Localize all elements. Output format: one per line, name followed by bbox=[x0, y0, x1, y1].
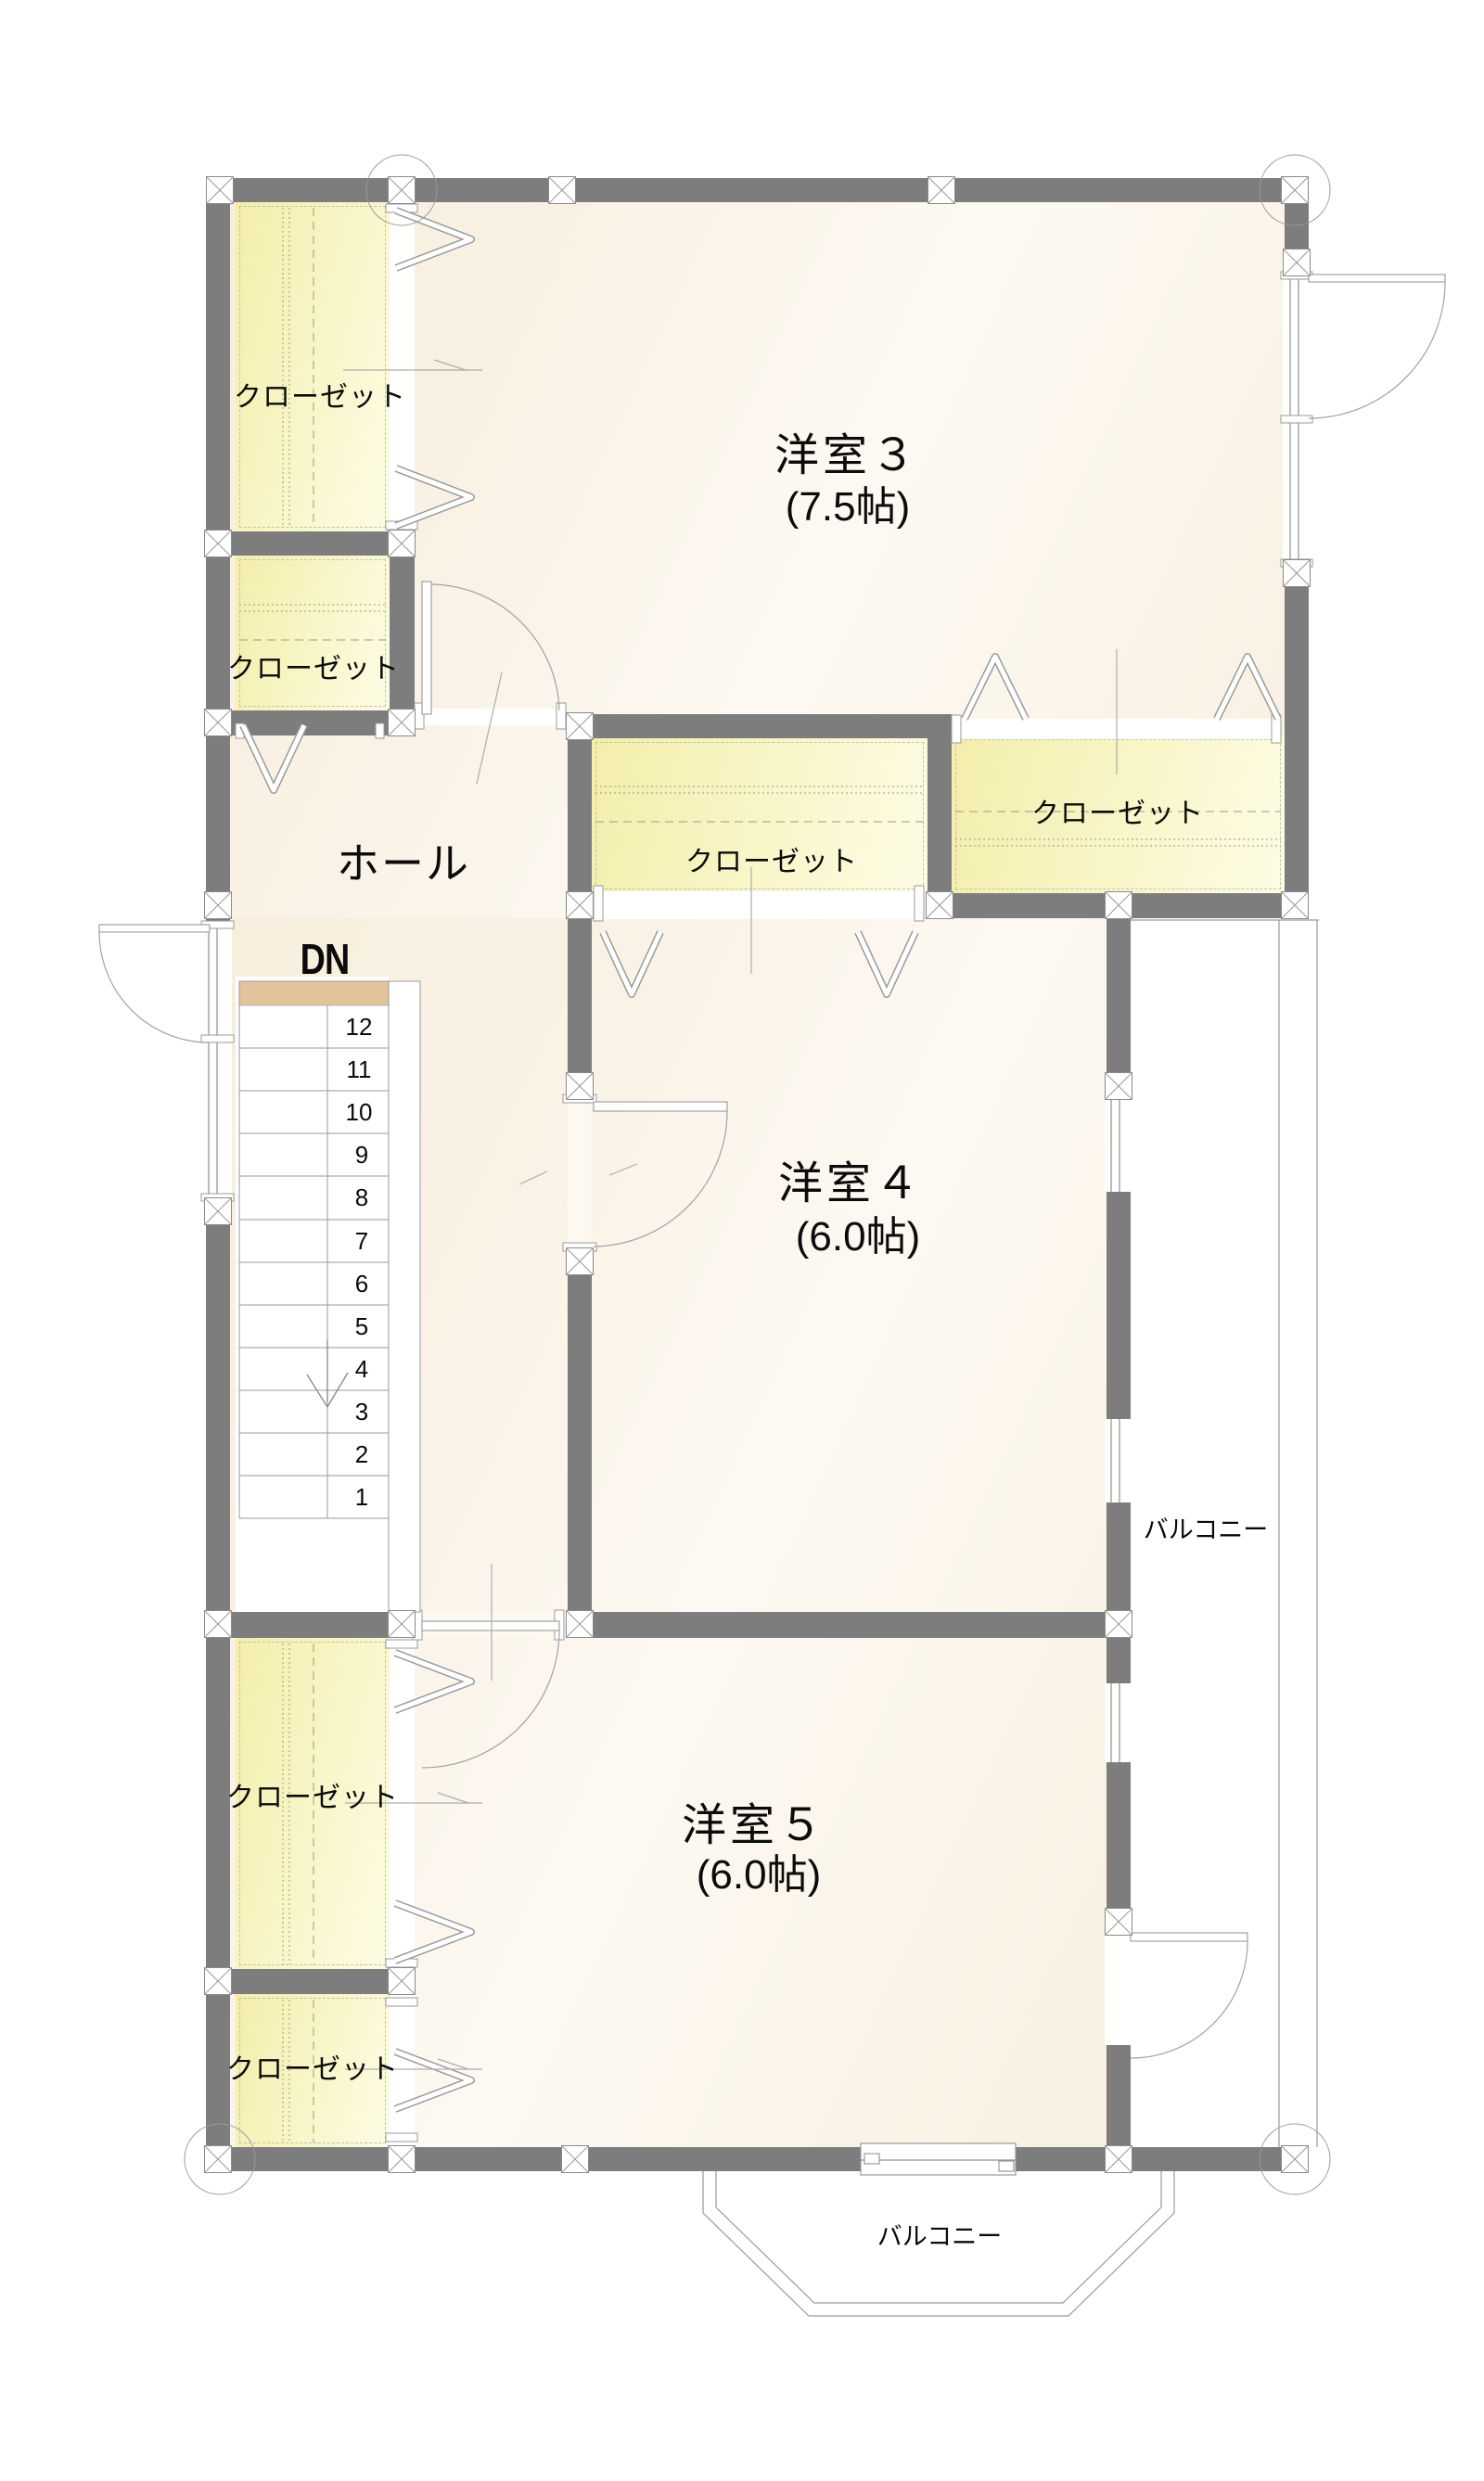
closet-mid-right-label: クローゼット bbox=[1031, 800, 1204, 828]
stairs-dn-label: DN bbox=[301, 938, 350, 980]
room5-name: 洋室５ bbox=[682, 1804, 826, 1848]
stair-step-12: 12 bbox=[346, 1015, 373, 1039]
room4-size: (6.0帖) bbox=[796, 1217, 920, 1258]
stairs-down-arrow bbox=[307, 1340, 348, 1407]
room3-size: (7.5帖) bbox=[786, 487, 910, 528]
stair-step-2: 2 bbox=[355, 1442, 368, 1466]
floorplan-2f: クローゼット クローゼット クローゼット クローゼット クローゼット クローゼッ… bbox=[0, 0, 1484, 2481]
closet-2-label: クローゼット bbox=[227, 656, 400, 684]
balcony-bottom-label: バルコニー bbox=[877, 2225, 1002, 2250]
closet-3-label: クローゼット bbox=[226, 1784, 399, 1812]
hall-label: ホール bbox=[337, 842, 470, 885]
stair-step-5: 5 bbox=[355, 1314, 368, 1338]
stair-step-4: 4 bbox=[355, 1357, 368, 1381]
closet-4-label: クローゼット bbox=[226, 2056, 399, 2084]
room3-name: 洋室３ bbox=[774, 434, 919, 479]
balcony-right-label: バルコニー bbox=[1144, 1518, 1268, 1543]
closet-mid-left-label: クローゼット bbox=[685, 849, 858, 876]
stair-step-1: 1 bbox=[355, 1485, 368, 1509]
stair-step-9: 9 bbox=[355, 1143, 368, 1167]
stairs-drawing bbox=[239, 981, 420, 1612]
stair-step-7: 7 bbox=[355, 1229, 368, 1253]
room5-size: (6.0帖) bbox=[697, 1855, 821, 1896]
stair-step-8: 8 bbox=[355, 1185, 368, 1209]
jamb-tabs bbox=[201, 204, 1312, 2142]
stair-step-10: 10 bbox=[346, 1100, 373, 1124]
stair-step-6: 6 bbox=[355, 1272, 368, 1296]
room4-name: 洋室４ bbox=[778, 1162, 923, 1207]
stair-step-3: 3 bbox=[355, 1400, 368, 1424]
stair-step-11: 11 bbox=[347, 1057, 372, 1081]
closet-1-label: クローゼット bbox=[234, 384, 406, 412]
floorplan-drawing bbox=[0, 0, 1484, 2481]
